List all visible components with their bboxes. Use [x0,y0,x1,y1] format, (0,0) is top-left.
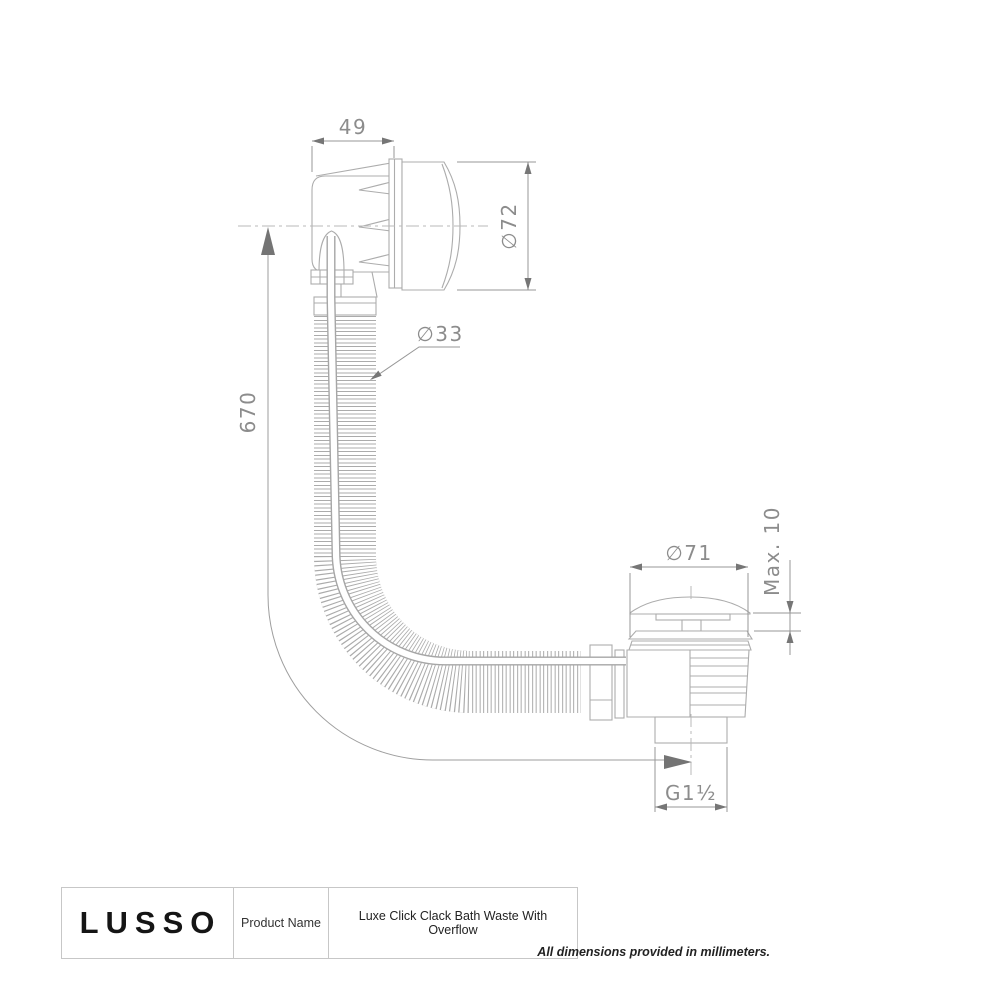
hose-top-collar [314,297,376,315]
waste-flange [629,631,752,639]
overflow-top-edge [316,163,391,176]
product-name-label: Product Name [234,888,329,958]
arrow-right-icon [382,138,394,145]
arrow-down-icon [787,601,794,613]
click-clack-cap-dome [630,597,750,614]
arrow-up-icon [261,227,275,255]
dim-text-hose-length: 670 [236,391,260,434]
arrow-right-icon [736,564,748,571]
dim-text-max-deck-thickness: Max. 10 [760,506,784,596]
arrow-left-icon [630,564,642,571]
dim-text-thread-size: G1½ [665,781,717,805]
dimension-overflow-diameter: ∅72 [457,162,536,290]
brand-logo: LUSSO [62,888,234,958]
hose-adapter-nut [590,645,612,720]
arrow-down-icon [525,278,532,290]
arrow-left-icon [312,138,324,145]
dim-text-overflow-width: 49 [339,115,367,139]
arrow-up-icon [787,631,794,643]
waste-body [627,650,749,717]
dimension-overflow-width: 49 [312,115,394,172]
dim-text-waste-diameter: ∅71 [665,541,712,565]
overflow-flange-plate [389,159,402,288]
technical-drawing-page: 49 ∅72 ∅33 670 ∅71 Max. 10 G1½ [0,0,1000,1000]
waste-fitting [590,597,752,743]
flexible-overflow-hose [345,316,581,682]
arrow-up-icon [525,162,532,174]
units-footnote: All dimensions provided in millimeters. [400,945,770,959]
dim-text-hose-diameter: ∅33 [416,322,463,346]
dim-text-overflow-diameter: ∅72 [497,202,521,249]
bath-waste-technical-drawing: 49 ∅72 ∅33 670 ∅71 Max. 10 G1½ [0,0,1000,1000]
cap-under-plate [656,614,730,620]
dimension-max-deck-thickness: Max. 10 [753,506,801,655]
dimension-hose-diameter: ∅33 [370,322,464,380]
cap-stem [682,620,701,631]
arrow-right-icon [664,755,692,769]
